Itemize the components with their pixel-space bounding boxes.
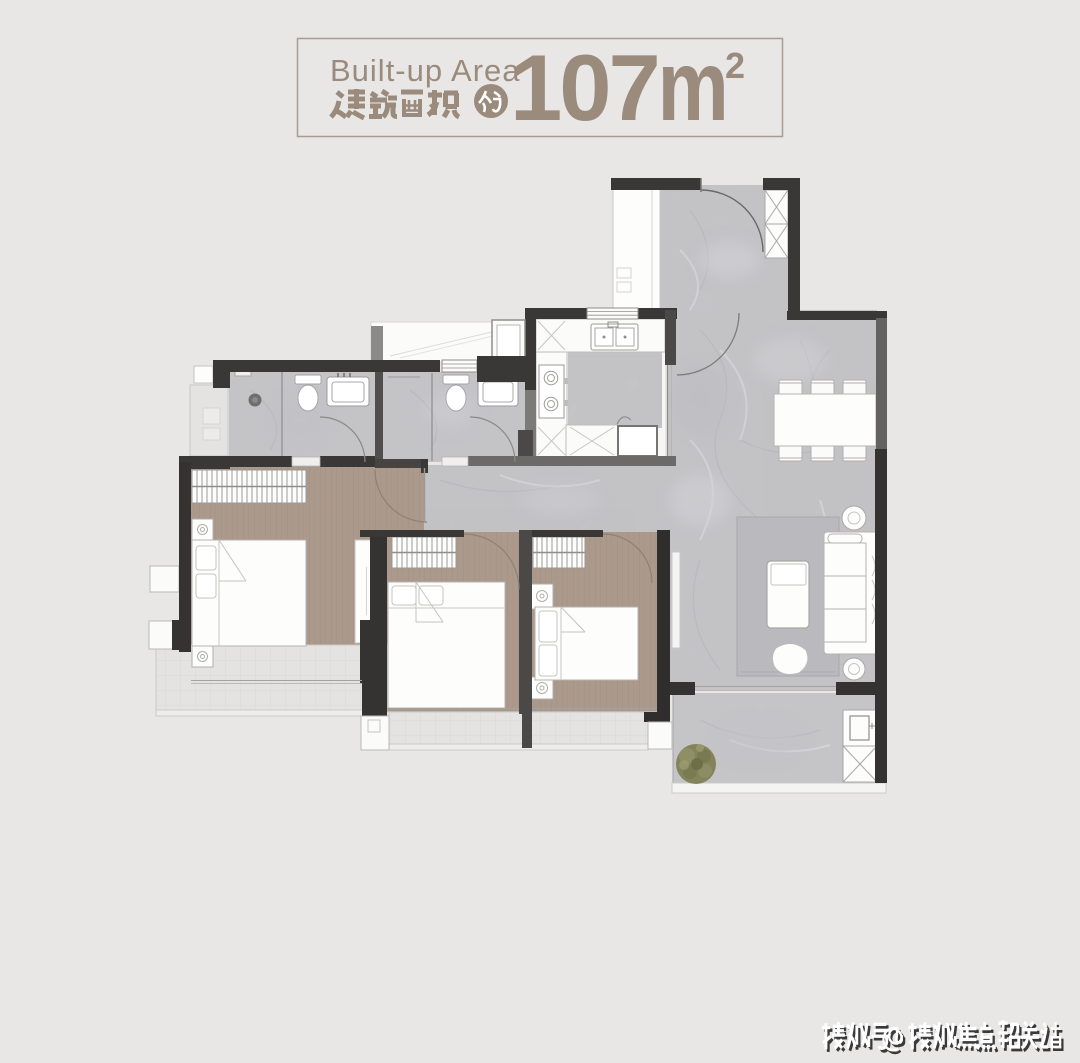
svg-text:m: m	[658, 31, 729, 143]
svg-text:2: 2	[725, 45, 745, 86]
svg-text:Built-up Area: Built-up Area	[330, 53, 521, 88]
svg-text:107: 107	[510, 35, 658, 140]
